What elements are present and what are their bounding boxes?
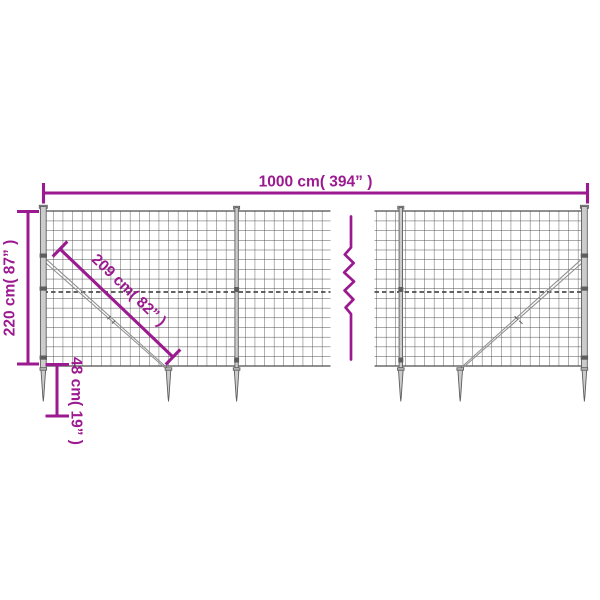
width-dimension: 1000 cm( 394” ) bbox=[44, 174, 588, 204]
fence-post-right-end bbox=[580, 205, 588, 367]
diagram-canvas: 1000 cm( 394” ) 220 cm( 87” ) 48 cm( 19”… bbox=[0, 0, 600, 600]
product-dimension-diagram: 1000 cm( 394” ) 220 cm( 87” ) 48 cm( 19”… bbox=[0, 0, 600, 600]
spike-depth-dimension: 48 cm( 19” ) bbox=[46, 357, 85, 445]
ground-spike bbox=[398, 368, 405, 402]
fence-post-left-end bbox=[39, 205, 47, 367]
fence-post-intermediate bbox=[234, 206, 240, 367]
wire-mesh-panel bbox=[375, 211, 588, 366]
fence-right-section bbox=[375, 205, 589, 401]
wire-mesh-panel bbox=[44, 211, 331, 366]
spike-depth-label: 48 cm( 19” ) bbox=[68, 357, 85, 445]
ground-spike bbox=[40, 368, 47, 402]
height-dimension: 220 cm( 87” ) bbox=[2, 212, 40, 365]
ground-spike bbox=[457, 368, 464, 402]
ground-spike bbox=[233, 368, 240, 402]
break-symbol bbox=[344, 217, 354, 360]
fence-post-intermediate bbox=[398, 206, 404, 367]
height-dimension-label: 220 cm( 87” ) bbox=[2, 240, 19, 337]
ground-spike bbox=[165, 368, 172, 402]
width-dimension-label: 1000 cm( 394” ) bbox=[259, 174, 373, 191]
ground-spike bbox=[581, 368, 588, 402]
